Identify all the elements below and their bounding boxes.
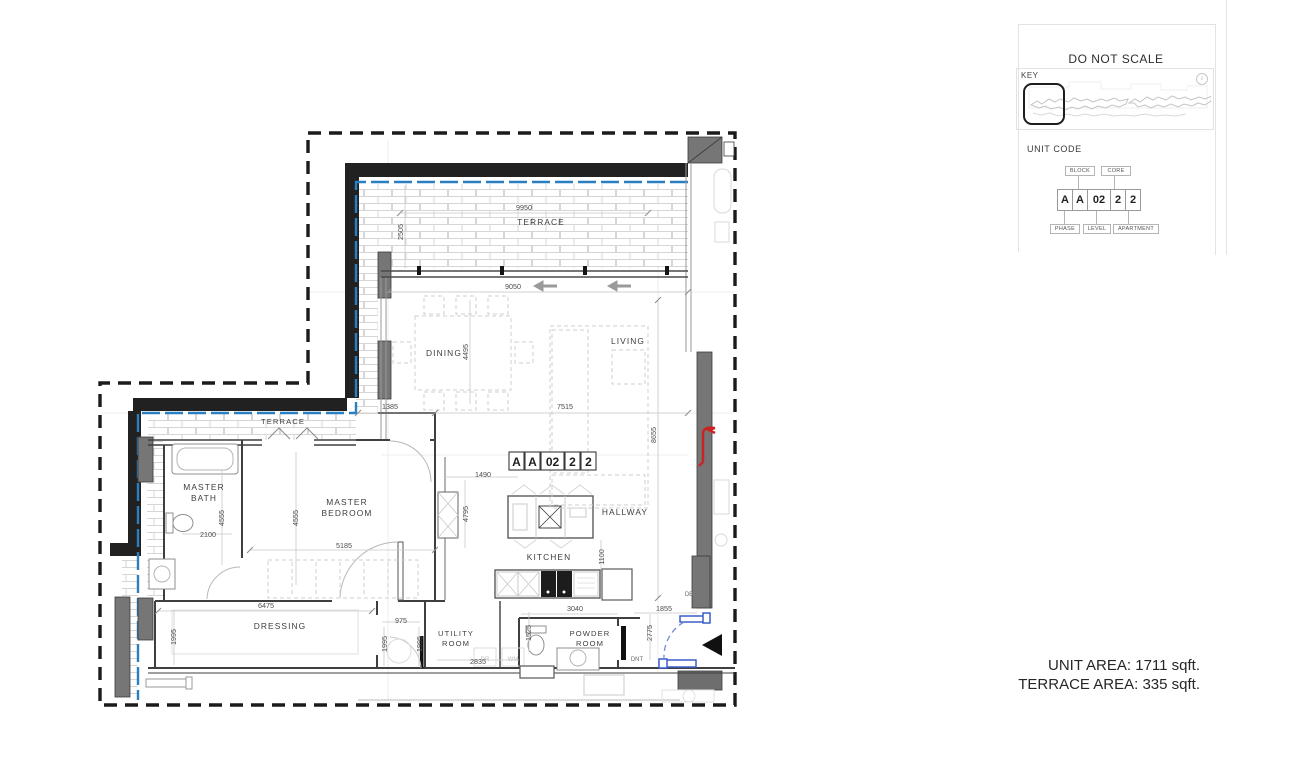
room-hallway: HALLWAY bbox=[602, 507, 648, 517]
unit-tag-cell-2: A bbox=[528, 455, 537, 469]
dim-7515: 7515 bbox=[557, 402, 573, 411]
unit-tag-cell-1: A bbox=[512, 455, 521, 469]
dim-2100: 2100 bbox=[200, 530, 216, 539]
dim-2775: 2775 bbox=[645, 625, 654, 641]
dim-9050: 9050 bbox=[505, 282, 521, 291]
kitchen-island bbox=[508, 485, 593, 548]
tag-wm: WM bbox=[508, 657, 519, 663]
slide-direction-arrows bbox=[534, 281, 631, 291]
entrance-door bbox=[659, 613, 710, 668]
dim-1995-c: 1995 bbox=[415, 636, 424, 652]
dim-1385: 1385 bbox=[382, 402, 398, 411]
room-living: LIVING bbox=[611, 336, 645, 346]
dim-4795: 4795 bbox=[461, 506, 470, 522]
dim-1995-a: 1995 bbox=[169, 629, 178, 645]
room-master-bedroom-2: BEDROOM bbox=[322, 508, 373, 518]
dim-975: 975 bbox=[395, 616, 407, 625]
room-terrace-top: TERRACE bbox=[517, 217, 565, 227]
room-master-bath-1: MASTER bbox=[183, 482, 225, 492]
dim-1100: 1100 bbox=[597, 549, 606, 564]
unit-area-text: UNIT AREA: 1711 sqft. bbox=[980, 656, 1200, 675]
tag-dr: DR bbox=[481, 657, 490, 663]
unit-tag-cell-3: 02 bbox=[546, 455, 560, 469]
room-kitchen: KITCHEN bbox=[527, 552, 571, 562]
tag-db: DB bbox=[685, 592, 693, 598]
furniture-dashed bbox=[268, 296, 648, 598]
unit-tag-cell-4: 2 bbox=[569, 455, 576, 469]
dim-3040: 3040 bbox=[567, 604, 583, 613]
dressing-wardrobe bbox=[172, 610, 358, 654]
unit-tag-cell-5: 2 bbox=[585, 455, 592, 469]
dim-4495: 4495 bbox=[461, 344, 470, 360]
room-utility-2: ROOM bbox=[442, 639, 470, 648]
dim-5185: 5185 bbox=[336, 541, 352, 550]
dim-4555-b: 4555 bbox=[291, 510, 300, 526]
terrace-area-text: TERRACE AREA: 335 sqft. bbox=[980, 675, 1200, 694]
dim-1525: 1525 bbox=[524, 625, 533, 641]
floor-plan-sheet: 9950 2505 9050 4495 1385 7515 8655 1490 … bbox=[0, 0, 1300, 777]
room-master-bath-2: BATH bbox=[191, 493, 217, 503]
unit-code-tag: A A 02 2 2 bbox=[509, 452, 596, 470]
entry-arrow-icon bbox=[702, 634, 722, 656]
dim-8655: 8655 bbox=[649, 427, 658, 443]
dim-1995-b: 1995 bbox=[380, 636, 389, 652]
dim-1490: 1490 bbox=[475, 470, 491, 479]
room-dining: DINING bbox=[426, 348, 462, 358]
area-summary: UNIT AREA: 1711 sqft. TERRACE AREA: 335 … bbox=[980, 656, 1200, 694]
tag-dnt: DNT bbox=[631, 657, 644, 663]
room-dressing: DRESSING bbox=[254, 621, 307, 631]
dim-1855: 1855 bbox=[656, 604, 672, 613]
dim-9950: 9950 bbox=[516, 203, 532, 212]
dim-6475: 6475 bbox=[258, 601, 274, 610]
room-master-bedroom-1: MASTER bbox=[326, 497, 368, 507]
room-powder-2: ROOM bbox=[576, 639, 604, 648]
room-utility-1: UTILITY bbox=[438, 629, 474, 638]
dim-4555-a: 4555 bbox=[217, 510, 226, 526]
room-powder-1: POWDER bbox=[570, 629, 611, 638]
dim-2505: 2505 bbox=[396, 224, 405, 240]
room-terrace-left: TERRACE bbox=[261, 417, 305, 426]
